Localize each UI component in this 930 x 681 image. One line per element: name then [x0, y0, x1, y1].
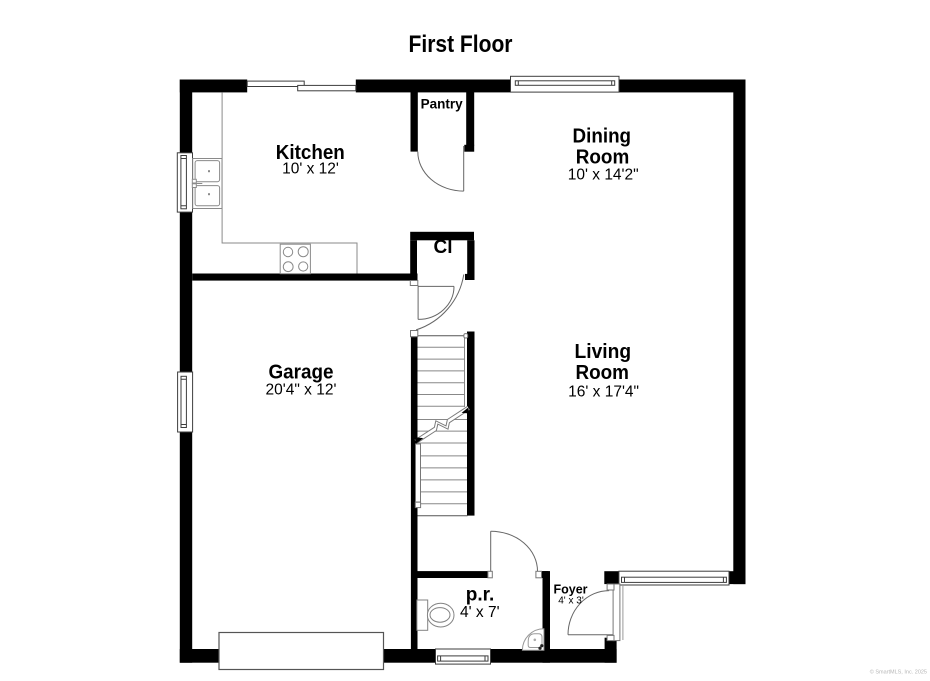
svg-text:First Floor: First Floor — [409, 31, 513, 58]
svg-text:Garage: Garage — [269, 362, 334, 384]
svg-text:10' x 12': 10' x 12' — [282, 161, 339, 178]
svg-text:Pantry: Pantry — [421, 96, 464, 111]
svg-text:Room: Room — [575, 362, 629, 384]
svg-text:Room: Room — [576, 146, 630, 168]
svg-text:Living: Living — [575, 341, 632, 363]
svg-text:Foyer: Foyer — [553, 583, 587, 597]
svg-text:10' x 14'2": 10' x 14'2" — [568, 167, 639, 184]
svg-text:Dining: Dining — [573, 125, 632, 147]
svg-text:© SmartMLS, Inc. 2025: © SmartMLS, Inc. 2025 — [870, 669, 927, 676]
svg-text:20'4" x 12': 20'4" x 12' — [266, 382, 337, 399]
svg-text:p.r.: p.r. — [466, 585, 495, 606]
svg-text:4' x 3': 4' x 3' — [558, 596, 584, 607]
svg-text:Cl: Cl — [434, 237, 453, 258]
svg-text:4' x 7': 4' x 7' — [460, 604, 500, 621]
svg-text:16' x 17'4": 16' x 17'4" — [568, 384, 639, 401]
